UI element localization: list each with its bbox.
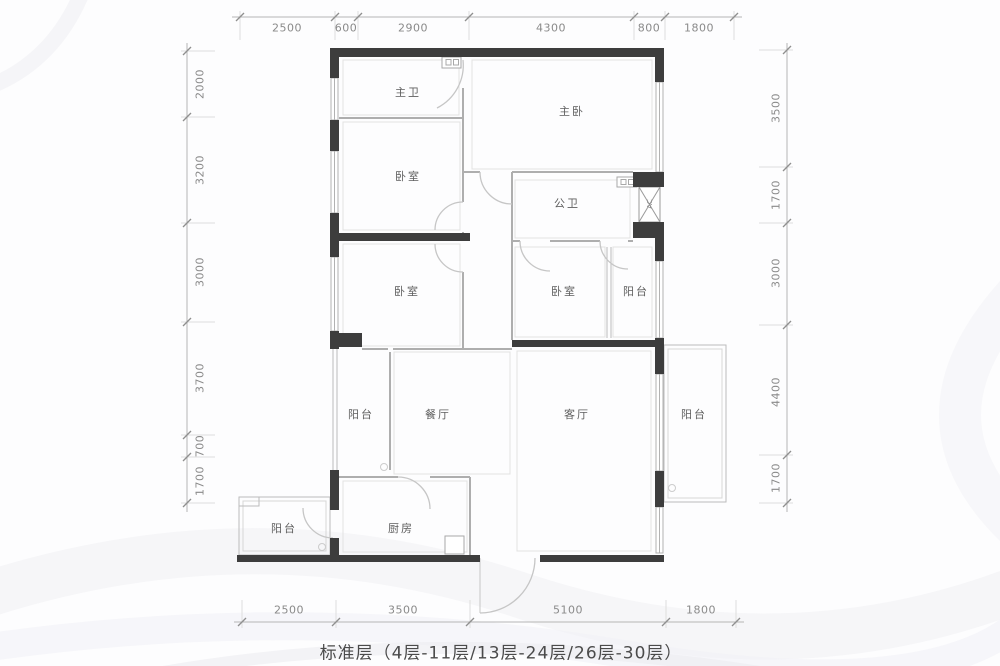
- dim-bottom-2: 3500: [388, 604, 418, 617]
- dim-left-6: 1700: [194, 466, 207, 496]
- room-label-bedroom-top-left: 卧室: [395, 168, 421, 184]
- dim-bottom-3: 5100: [553, 604, 583, 617]
- dim-top-4: 4300: [536, 22, 566, 35]
- dim-left-1: 2000: [194, 69, 207, 99]
- balcony-outlines: [239, 345, 726, 555]
- floorplan-page: 主卫 主卧 卧室 公卫 AC 卧室 卧室 阳台 阳台 餐厅 客厅 阳台 阳台 厨…: [0, 0, 1000, 666]
- room-label-balcony-living: 阳台: [681, 406, 707, 422]
- room-label-balcony-mid-right: 阳台: [623, 283, 649, 299]
- dim-left-2: 3200: [194, 155, 207, 185]
- dim-bottom-4: 1800: [686, 604, 716, 617]
- room-label-bedroom-mid-right: 卧室: [551, 283, 577, 299]
- dim-right-1: 3500: [770, 93, 783, 123]
- dim-right-5: 1700: [770, 463, 783, 493]
- door-kitchen: [398, 477, 430, 509]
- dim-top-1: 2500: [272, 22, 302, 35]
- room-label-bedroom-mid-left: 卧室: [394, 283, 420, 299]
- room-label-kitchen: 厨房: [388, 520, 414, 536]
- kitchen-counter-box: [445, 536, 464, 554]
- room-label-ac-shaft: AC: [646, 199, 654, 209]
- floorplan-drawing: [0, 0, 1000, 666]
- door-bedroom-mid-right: [520, 241, 550, 271]
- dim-top-6: 1800: [684, 22, 714, 35]
- dim-left-5: 700: [194, 435, 207, 458]
- dim-right-3: 3000: [770, 258, 783, 288]
- door-bedroom-top-left: [435, 202, 463, 230]
- interior-walls: [339, 88, 633, 555]
- dim-top-5: 800: [638, 22, 661, 35]
- light-partitions: [333, 247, 611, 470]
- fixtures: [442, 57, 637, 554]
- dim-right-4: 4400: [770, 377, 783, 407]
- door-public-bath: [600, 241, 628, 269]
- floor-caption: 标准层（4层-11层/13层-24层/26层-30层）: [320, 639, 683, 664]
- room-label-balcony-bottom-left: 阳台: [271, 520, 297, 536]
- door-master-bedroom: [480, 172, 512, 204]
- room-label-living-room: 客厅: [564, 406, 590, 422]
- dim-left-4: 3700: [194, 363, 207, 393]
- dim-right-2: 1700: [770, 180, 783, 210]
- dim-bottom-1: 2500: [274, 604, 304, 617]
- dim-top-2: 600: [335, 22, 358, 35]
- room-label-balcony-dining: 阳台: [348, 406, 374, 422]
- exterior-walls: [237, 48, 664, 562]
- room-label-dining-room: 餐厅: [425, 406, 451, 422]
- room-label-master-bedroom: 主卧: [559, 103, 585, 119]
- room-label-master-bath: 主卫: [395, 84, 421, 100]
- room-inner-outlines: [343, 60, 652, 552]
- background-swirls: [0, 0, 1000, 666]
- room-label-public-bath: 公卫: [554, 195, 580, 211]
- door-bedroom-mid-left: [435, 244, 463, 272]
- dim-left-3: 3000: [194, 257, 207, 287]
- dim-top-3: 2900: [398, 22, 428, 35]
